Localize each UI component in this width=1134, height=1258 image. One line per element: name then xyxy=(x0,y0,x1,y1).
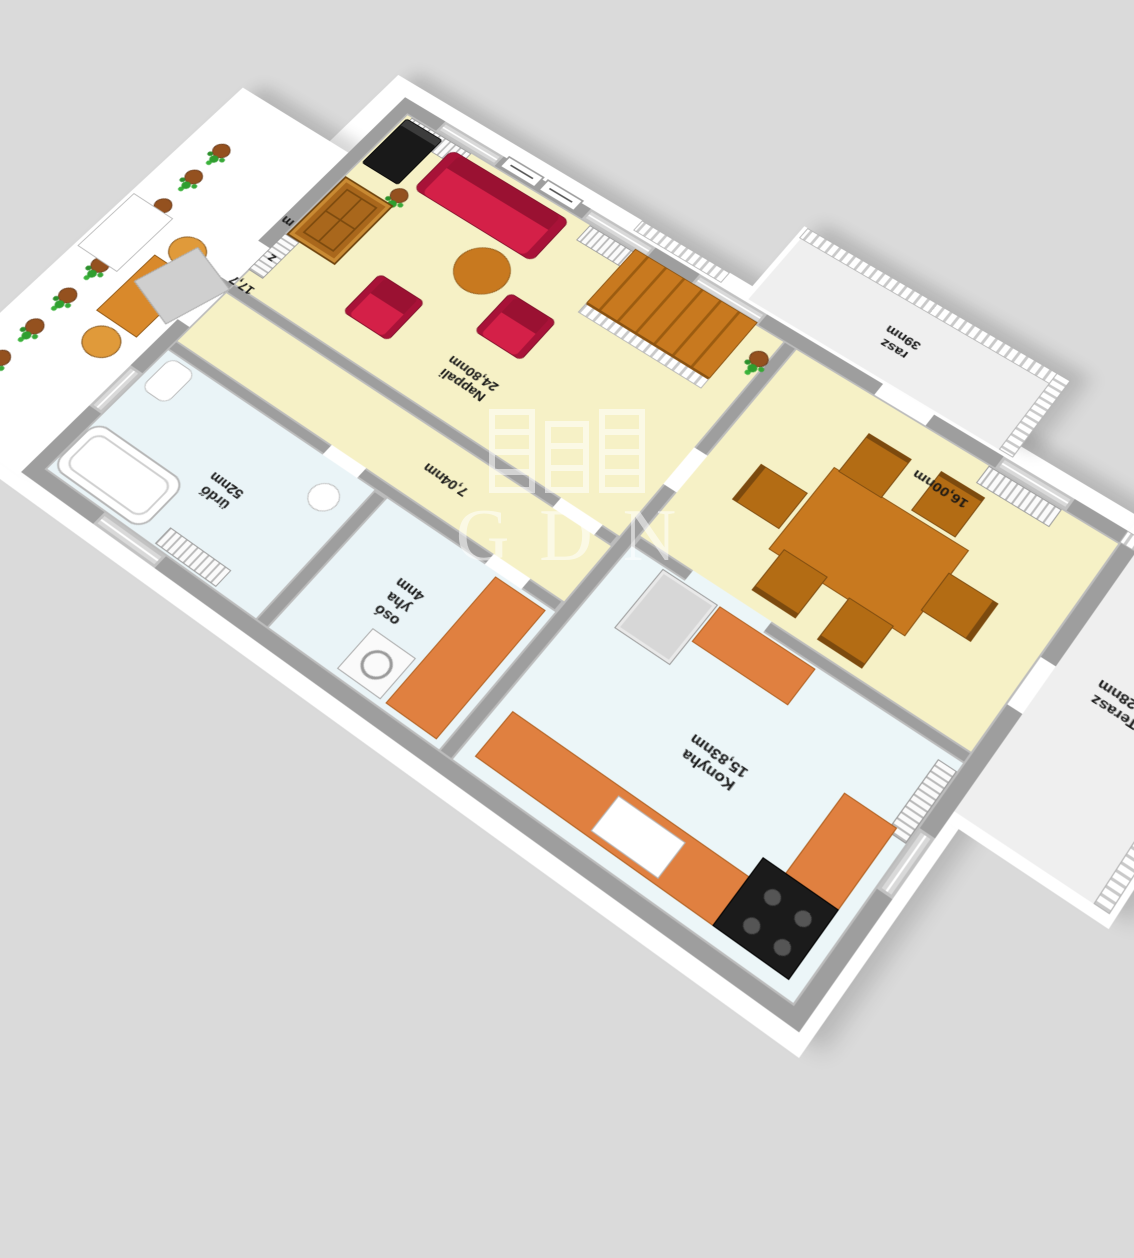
watermark: GDN xyxy=(407,398,727,576)
gdn-columns-emblem-icon xyxy=(482,398,652,498)
floorplan-3d-view: Nappali 24,80nm 16,00nm Konyha 15,83nm 7… xyxy=(0,0,1134,1227)
screenshot-root: { "scene": { "background_color": "#dadad… xyxy=(0,0,1134,1024)
watermark-text: GDN xyxy=(435,498,727,576)
